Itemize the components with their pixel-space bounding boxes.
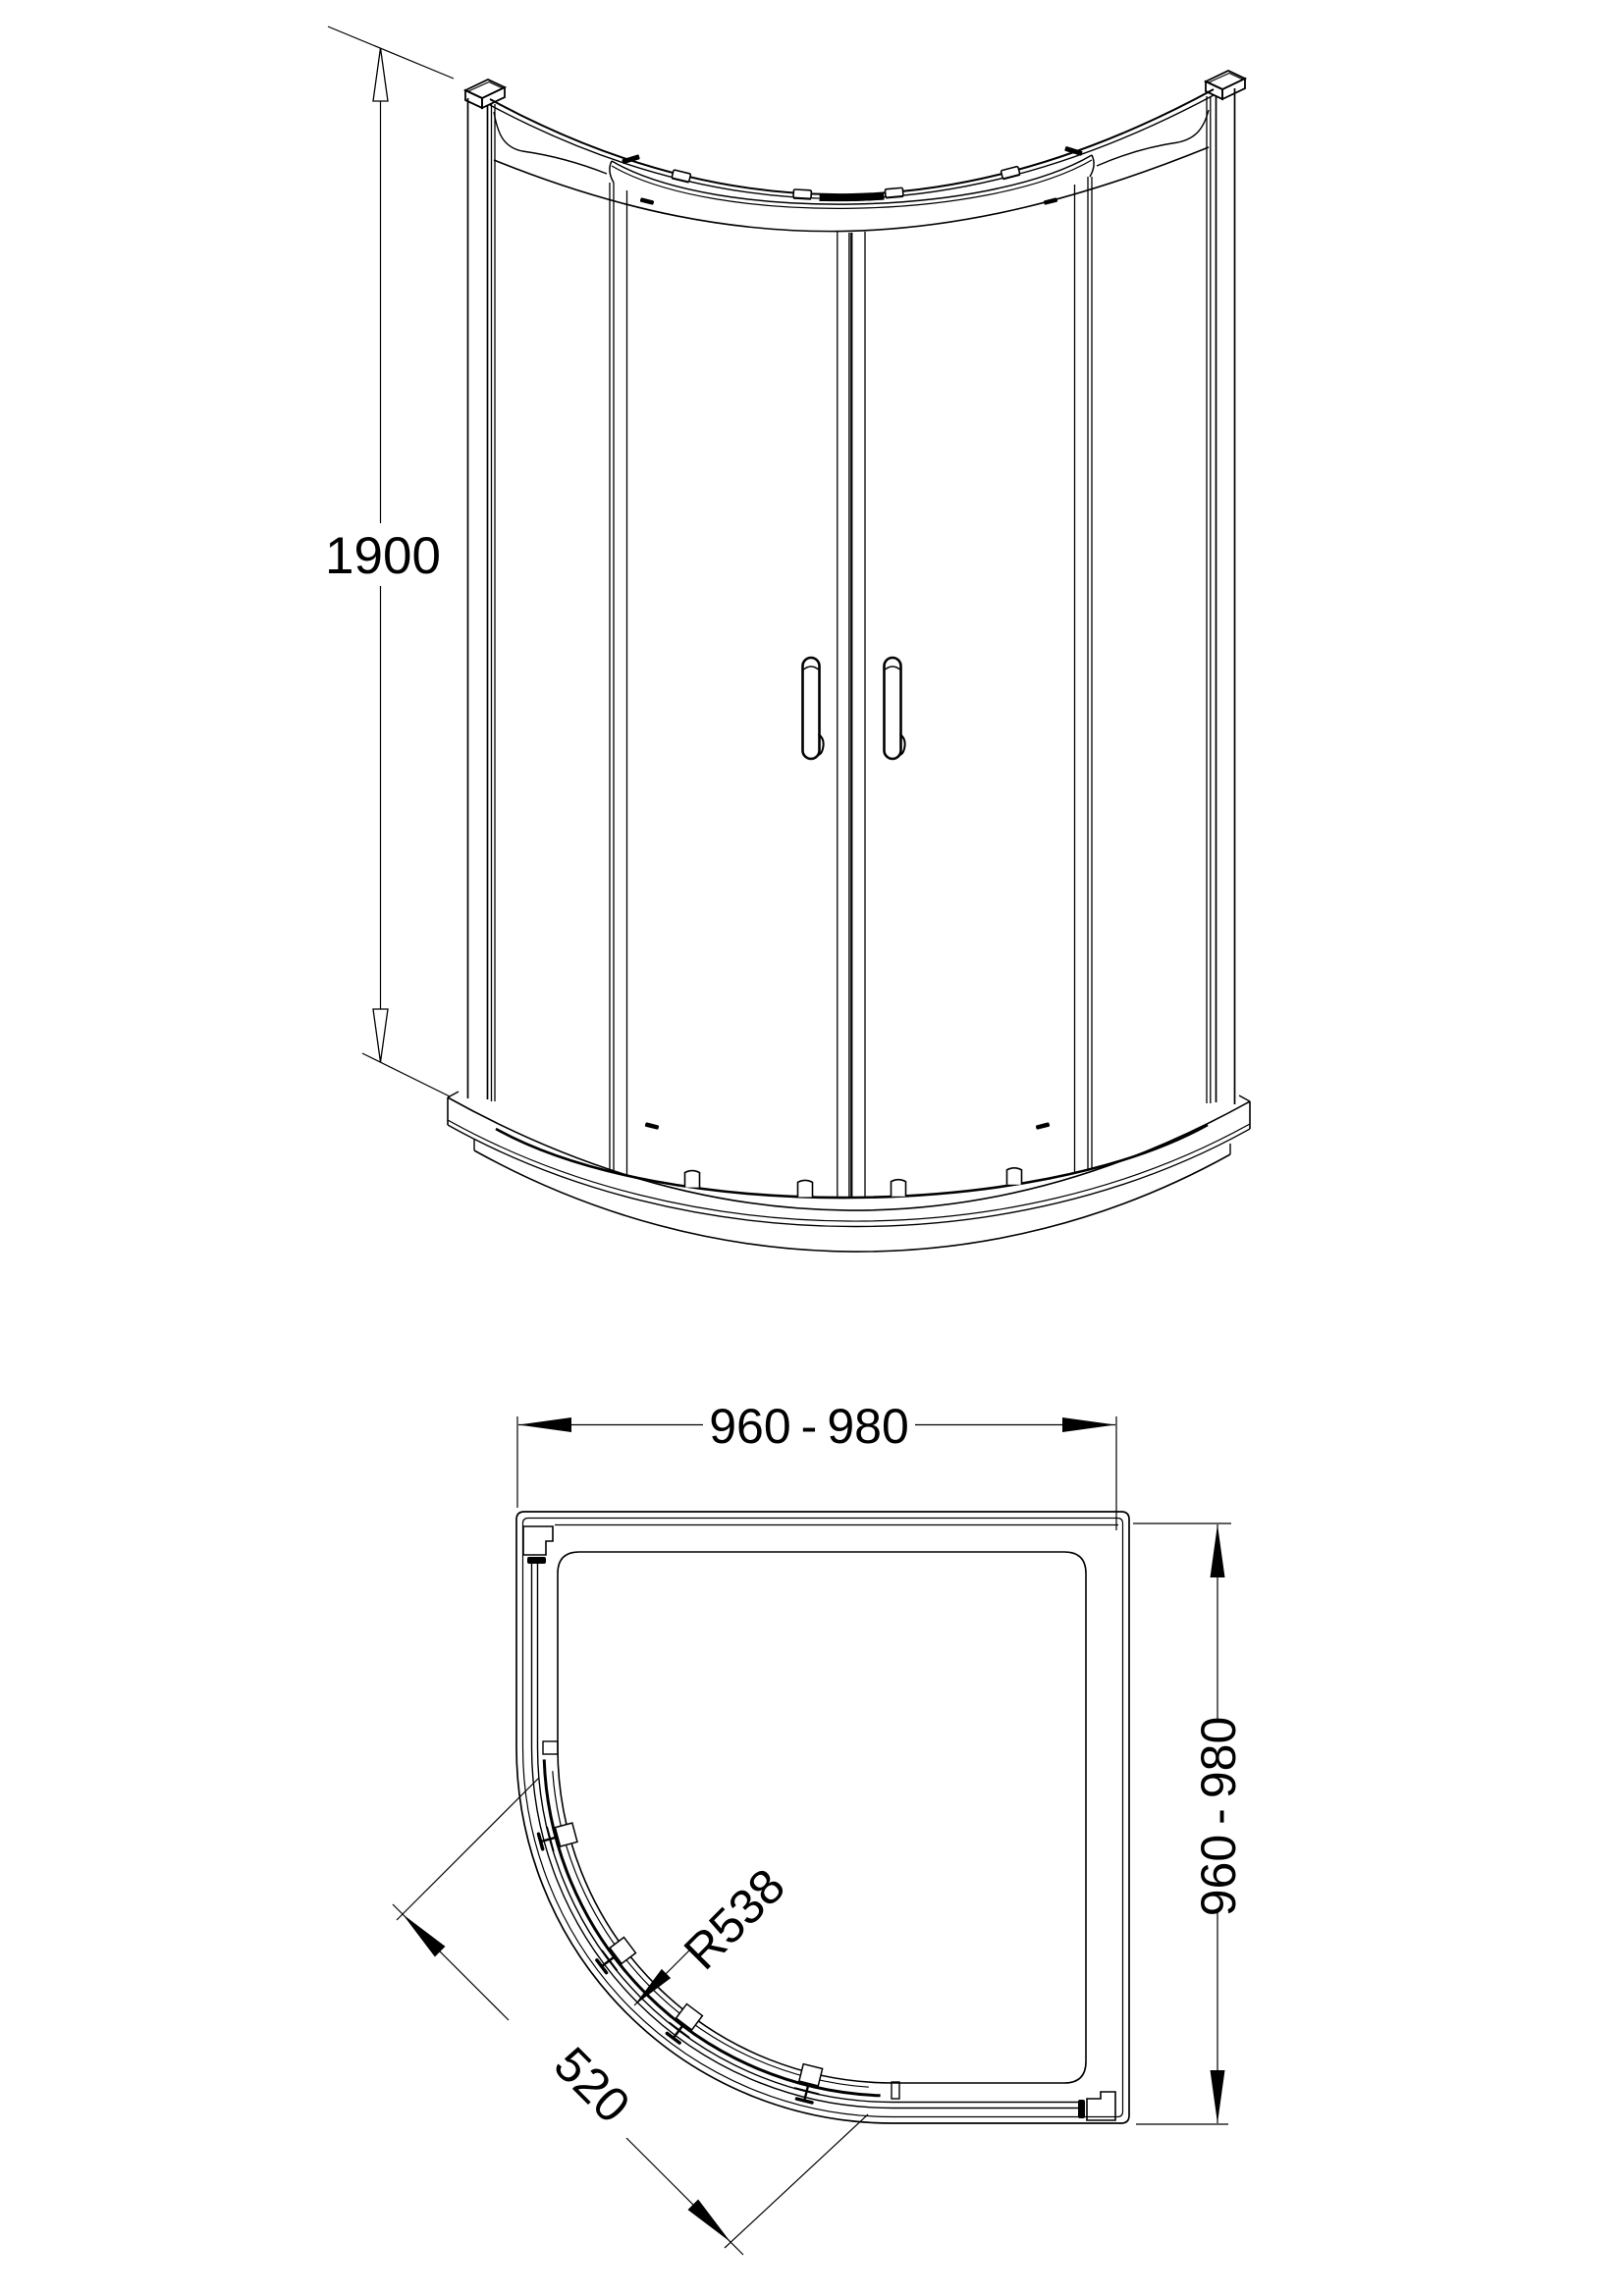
svg-text:R538: R538 — [674, 1858, 795, 1980]
svg-text:520: 520 — [544, 2037, 641, 2134]
svg-text:960 - 980: 960 - 980 — [1191, 1717, 1246, 1917]
svg-text:960 - 980: 960 - 980 — [709, 1399, 909, 1454]
svg-text:1900: 1900 — [325, 527, 441, 585]
